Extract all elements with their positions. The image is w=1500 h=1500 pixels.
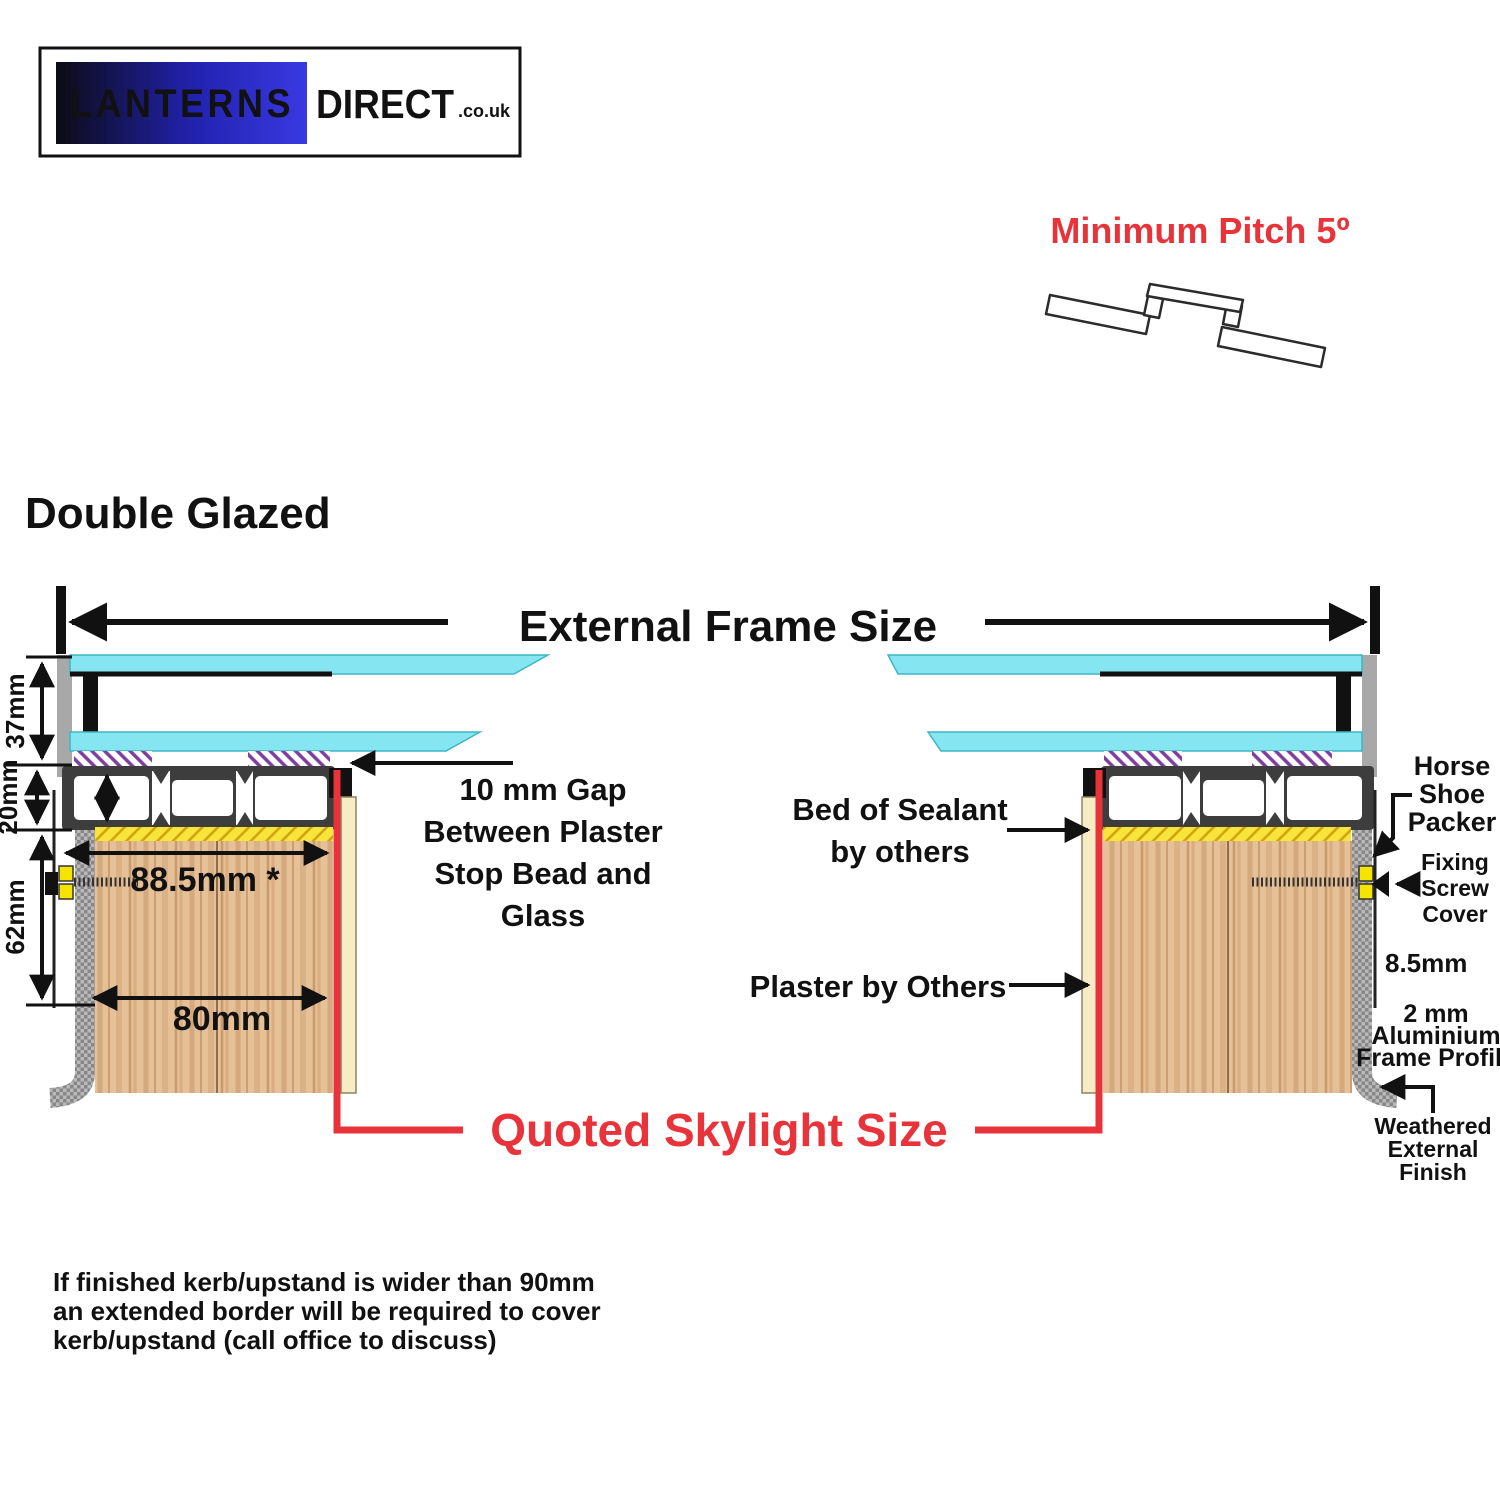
glazing-gasket-left-outer xyxy=(74,751,152,766)
logo: LANTERNS DIRECT .co.uk xyxy=(40,48,520,156)
minimum-pitch-note: Minimum Pitch 5º xyxy=(1046,210,1350,367)
right-cross-section xyxy=(888,655,1397,1130)
pitch-left-roof-slab xyxy=(1046,295,1150,334)
horseshoe-label-line: Horse xyxy=(1414,751,1491,781)
callout-frame-profile: 2 mm Aluminium Frame Profile xyxy=(1356,1000,1500,1072)
glass-spacer-bar-right xyxy=(1336,676,1351,733)
frame-profile-label-line: Frame Profile xyxy=(1356,1044,1500,1072)
footer-note-line: an extended border will be required to c… xyxy=(53,1296,601,1326)
dim-label-37mm: 37mm xyxy=(0,673,30,748)
dim-label-20mm: 20mm xyxy=(0,759,23,834)
dim-tick-left xyxy=(56,586,66,654)
pitch-right-roof-slab xyxy=(1218,327,1325,367)
footer-note: If finished kerb/upstand is wider than 9… xyxy=(53,1267,601,1355)
horseshoe-label-line: Shoe xyxy=(1419,779,1485,809)
sealant-note-line: by others xyxy=(830,834,970,869)
quoted-skylight-size-label: Quoted Skylight Size xyxy=(490,1104,948,1156)
pitch-sketch-icon xyxy=(1046,284,1325,367)
outer-glass-pane-right xyxy=(888,655,1362,674)
glazing-gasket-left-inner xyxy=(248,751,330,766)
screw-head-left xyxy=(45,872,58,895)
screw-cover-label-line: Fixing xyxy=(1421,849,1489,875)
dim-label-80mm: 80mm xyxy=(173,1000,271,1038)
profile-chamber xyxy=(1203,780,1264,816)
inner-glass-pane-right xyxy=(928,732,1362,751)
plaster-stop-bead-left xyxy=(341,797,356,1093)
dim-tick-right xyxy=(1370,586,1380,654)
dim-label-62mm: 62mm xyxy=(0,879,30,954)
callout-horseshoe-packer: Horse Shoe Packer xyxy=(1374,751,1497,856)
profile-chamber xyxy=(255,776,327,820)
profile-chamber xyxy=(172,780,233,816)
profile-chamber xyxy=(1287,776,1362,820)
logo-text-direct: DIRECT xyxy=(316,81,454,127)
stop-bead-head-right xyxy=(1083,768,1106,798)
horseshoe-packer-right xyxy=(1359,884,1373,899)
logo-text-lanterns: LANTERNS xyxy=(70,82,294,126)
dim-label-8-5mm: 8.5mm xyxy=(1385,948,1467,978)
callout-fixing-screw-cover: Fixing Screw Cover xyxy=(1397,849,1489,927)
dim-label-88-5mm: 88.5mm * xyxy=(130,861,280,899)
gap-note-line: 10 mm Gap xyxy=(459,772,626,807)
section-title: Double Glazed xyxy=(25,489,331,538)
sealant-bed-left xyxy=(95,827,333,841)
footer-note-line: kerb/upstand (call office to discuss) xyxy=(53,1325,497,1355)
skylight-spec-sheet: LANTERNS DIRECT .co.uk Minimum Pitch 5º … xyxy=(0,0,1500,1500)
annotation-plaster-gap: 10 mm Gap Between Plaster Stop Bead and … xyxy=(352,763,663,933)
screw-cover-label-line: Screw xyxy=(1421,875,1489,901)
horseshoe-label-line: Packer xyxy=(1408,807,1497,837)
glazing-gasket-right-outer xyxy=(1252,751,1332,766)
external-frame-size-label: External Frame Size xyxy=(519,602,937,651)
gap-note-line: Glass xyxy=(501,898,585,933)
glazing-edge-line-right xyxy=(1100,672,1362,677)
glass-spacer-bar-left xyxy=(83,676,98,733)
skylight-section-diagram: LANTERNS DIRECT .co.uk Minimum Pitch 5º … xyxy=(0,0,1500,1500)
weathered-finish-strip-left xyxy=(75,830,95,1075)
horseshoe-packer-left xyxy=(59,884,73,899)
annotation-bed-of-sealant: Bed of Sealant by others xyxy=(792,792,1088,869)
profile-chamber xyxy=(74,776,149,820)
gap-note-line: Between Plaster xyxy=(423,814,663,849)
glazing-edge-line-left xyxy=(70,672,332,677)
glazing-gasket-right-inner xyxy=(1104,751,1182,766)
horseshoe-packer-left xyxy=(59,866,73,881)
logo-text-domain: .co.uk xyxy=(458,101,511,121)
weathered-label-line: Finish xyxy=(1399,1159,1467,1185)
annotation-plaster-by-others: Plaster by Others xyxy=(750,969,1088,1004)
inner-glass-pane-left xyxy=(70,732,480,751)
weathered-finish-foot-left xyxy=(50,1072,85,1098)
frame-edge-right xyxy=(1362,655,1377,777)
profile-chamber xyxy=(1109,776,1181,820)
annotation-arrow xyxy=(1374,795,1412,856)
gap-note-line: Stop Bead and xyxy=(434,856,651,891)
screw-cover-label-line: Cover xyxy=(1422,901,1487,927)
sealant-bed-right xyxy=(1103,827,1351,841)
minimum-pitch-label: Minimum Pitch 5º xyxy=(1050,210,1349,251)
external-frame-dimension: External Frame Size xyxy=(56,586,1380,654)
horseshoe-packer-right xyxy=(1359,866,1373,881)
left-cross-section: 37mm 20mm 62mm 88.5mm * 80mm xyxy=(0,655,548,1130)
plaster-stop-bead-right xyxy=(1082,797,1097,1093)
footer-note-line: If finished kerb/upstand is wider than 9… xyxy=(53,1267,595,1297)
sealant-note-line: Bed of Sealant xyxy=(792,792,1007,827)
outer-glass-pane-left xyxy=(70,655,548,674)
plaster-note: Plaster by Others xyxy=(750,969,1007,1004)
